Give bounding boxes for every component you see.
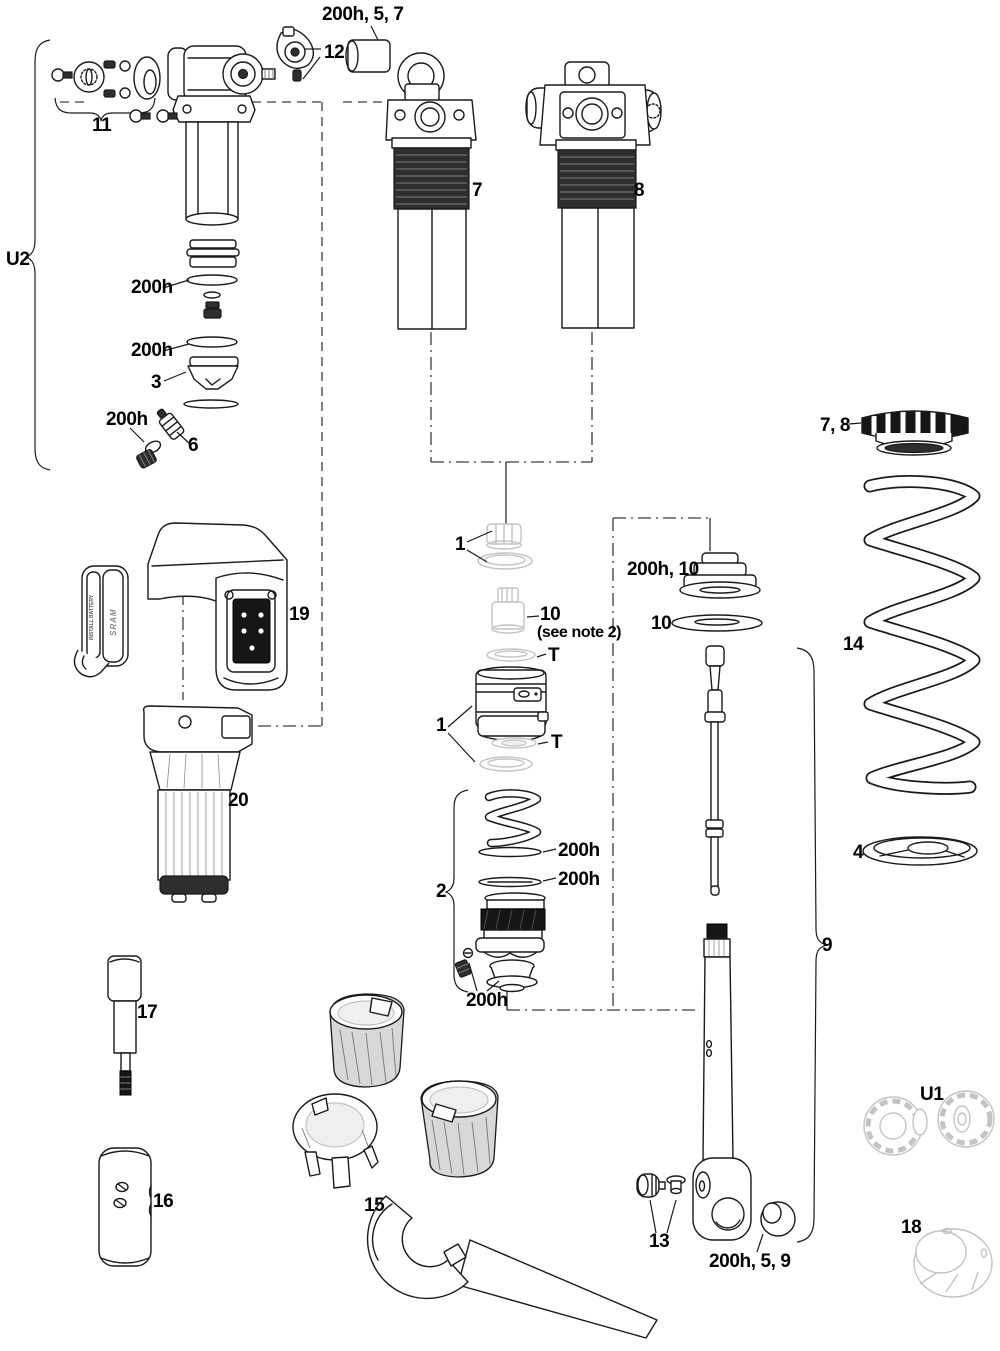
- label-6: 6: [188, 435, 198, 456]
- mount-hardware-group: [52, 57, 177, 122]
- exploded-parts-diagram-page: INSTALL BATTERY SRAM: [0, 0, 1000, 1351]
- label-3: 3: [151, 372, 161, 393]
- sleeve-tool-16: [99, 1148, 151, 1266]
- label-14: 14: [843, 634, 864, 655]
- spacer-sleeve-a: [330, 994, 404, 1087]
- label-200h-10: 200h, 10: [627, 559, 699, 580]
- t-ring-top-ghost: [487, 649, 535, 661]
- top-bushing: [346, 40, 390, 72]
- label-10-disc: 10: [651, 613, 671, 634]
- socket-cup-18: [914, 1229, 992, 1298]
- diagram-canvas: INSTALL BATTERY SRAM: [0, 0, 1000, 1351]
- label-7: 7: [472, 180, 482, 201]
- label-2: 2: [436, 881, 446, 902]
- label-10-valve: 10: [540, 604, 560, 625]
- label-11: 11: [92, 115, 112, 136]
- battery-note-text: INSTALL BATTERY: [89, 594, 95, 640]
- label-200h-4: 200h: [558, 840, 600, 861]
- damper-shaft: [705, 646, 725, 895]
- label-15: 15: [364, 1195, 385, 1216]
- castellated-ring: [293, 1094, 378, 1188]
- label-19: 19: [289, 604, 309, 625]
- label-8: 8: [634, 180, 644, 201]
- piston-group-2: [455, 793, 545, 991]
- label-see-note: (see note 2): [537, 624, 621, 641]
- label-12: 12: [324, 42, 344, 63]
- label-200h-5-9: 200h, 5, 9: [709, 1251, 791, 1272]
- air-piston-1: [476, 667, 548, 740]
- spring-preload-collar: [862, 410, 968, 455]
- label-u1: U1: [920, 1084, 944, 1105]
- battery-cover: INSTALL BATTERY SRAM: [74, 566, 128, 677]
- label-18: 18: [901, 1217, 921, 1238]
- shim-valve: [487, 960, 537, 992]
- eyelet-bushing-ring: [761, 1202, 795, 1236]
- battery-brand-text: SRAM: [109, 608, 118, 636]
- label-9: 9: [822, 935, 832, 956]
- label-200h-2: 200h: [131, 340, 173, 361]
- seal-head-3: [188, 357, 238, 389]
- wrench-tool-15: [368, 1196, 657, 1338]
- damper-body-9: [693, 924, 751, 1240]
- shaft-valve-10-ghost: [492, 588, 524, 633]
- label-200h-1: 200h: [131, 277, 173, 298]
- label-200h-6: 200h: [466, 990, 508, 1011]
- shaft-disc-10: [672, 615, 762, 631]
- label-4: 4: [853, 842, 864, 863]
- label-13: 13: [649, 1231, 669, 1252]
- label-200h-3: 200h: [106, 409, 148, 430]
- label-200h-5-7: 200h, 5, 7: [322, 4, 404, 25]
- coil-spring-14: [870, 481, 974, 788]
- label-17: 17: [137, 1002, 157, 1023]
- air-can-top-cap-ghost: [478, 524, 532, 569]
- spring-seat-4: [863, 837, 977, 865]
- label-t-top: T: [548, 645, 560, 666]
- mount-bolts: [130, 110, 177, 122]
- t-ring-bottom-ghost: [480, 738, 536, 771]
- label-1-bottom: 1: [436, 715, 447, 736]
- shock-body-7: [386, 53, 476, 329]
- label-16: 16: [153, 1191, 173, 1212]
- label-1-top: 1: [455, 534, 466, 555]
- spacer-sleeve-b: [421, 1081, 498, 1177]
- label-u2: U2: [6, 249, 30, 270]
- controller-module-19: [148, 523, 287, 690]
- label-20: 20: [228, 790, 248, 811]
- shaft-clamp-tool-17: [108, 956, 141, 1095]
- reservoir-motor-unit: [168, 46, 275, 225]
- label-7-8: 7, 8: [820, 415, 850, 436]
- label-200h-5: 200h: [558, 869, 600, 890]
- hardware-13: [637, 1174, 685, 1197]
- label-t-bottom: T: [551, 732, 563, 753]
